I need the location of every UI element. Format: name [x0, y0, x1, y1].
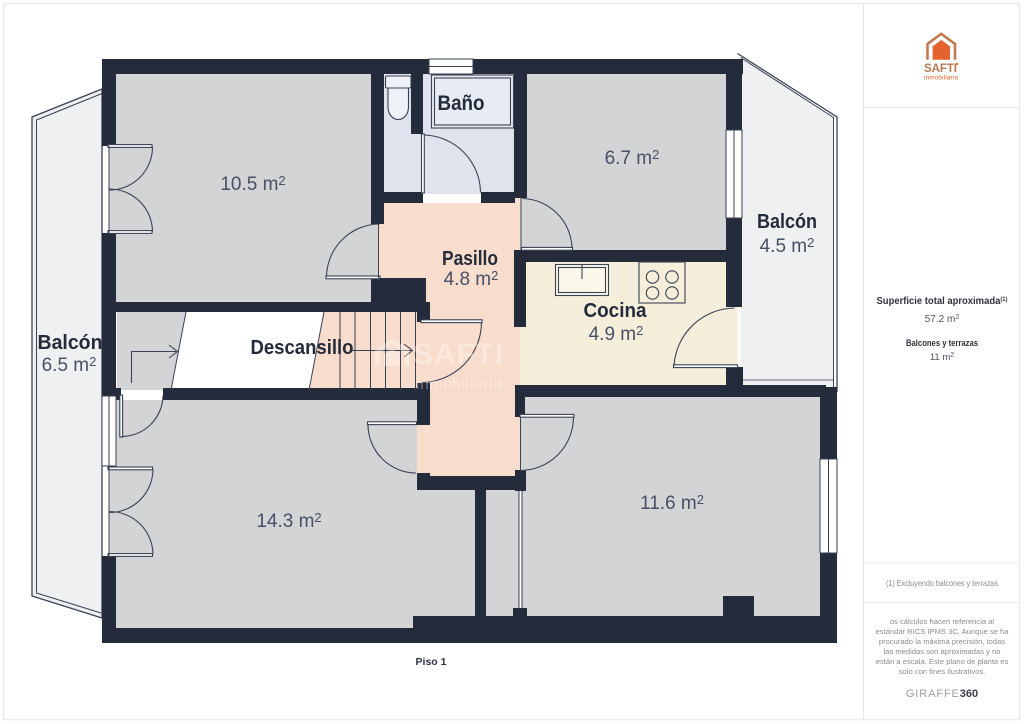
svg-text:Descansillo: Descansillo	[251, 337, 354, 359]
svg-text:6.5 m2: 6.5 m2	[42, 354, 97, 376]
svg-text:14.3 m2: 14.3 m2	[256, 510, 321, 532]
svg-text:57.2 m2: 57.2 m2	[925, 314, 960, 325]
svg-text:procurado la máxima precisión,: procurado la máxima precisión, todas	[879, 637, 1005, 646]
svg-text:estándar RICS IPMS 3C. Aunque: estándar RICS IPMS 3C. Aunque se ha	[876, 627, 1010, 636]
svg-text:SAFTI: SAFTI	[413, 338, 505, 371]
svg-text:inmobiliaria: inmobiliaria	[416, 376, 502, 393]
svg-text:11.6 m2: 11.6 m2	[640, 492, 704, 514]
svg-text:4.8 m2: 4.8 m2	[444, 268, 499, 290]
svg-text:Piso 1: Piso 1	[416, 656, 447, 668]
svg-text:os cálculos hacen referencia a: os cálculos hacen referencia al	[890, 617, 995, 626]
svg-text:Balcón: Balcón	[757, 211, 817, 233]
svg-text:Cocina: Cocina	[584, 300, 648, 322]
svg-text:SAFTI: SAFTI	[924, 63, 958, 75]
svg-text:Superficie total aproximada(1): Superficie total aproximada(1)	[877, 295, 1008, 307]
svg-text:inmobiliaria: inmobiliaria	[924, 75, 958, 82]
svg-text:GIRAFFE360: GIRAFFE360	[906, 688, 978, 700]
svg-text:4.9 m2: 4.9 m2	[589, 323, 644, 345]
svg-text:Pasillo: Pasillo	[442, 248, 498, 270]
svg-text:10.5 m2: 10.5 m2	[220, 173, 285, 195]
svg-text:(1) Excluyendo balcones y terr: (1) Excluyendo balcones y terrazas	[886, 579, 998, 588]
svg-text:las medidas son aproximadas y: las medidas son aproximadas y no	[884, 647, 1001, 656]
svg-text:Balcón: Balcón	[38, 332, 103, 354]
svg-text:solo con fines ilustrativos.: solo con fines ilustrativos.	[899, 667, 986, 676]
svg-text:4.5 m2: 4.5 m2	[760, 235, 815, 257]
svg-text:Balcones y terrazas: Balcones y terrazas	[906, 338, 978, 349]
svg-text:están a escala. Este plano de: están a escala. Este plano de planta es	[876, 657, 1009, 666]
svg-text:6.7 m2: 6.7 m2	[605, 147, 660, 169]
svg-text:Baño: Baño	[438, 92, 485, 115]
